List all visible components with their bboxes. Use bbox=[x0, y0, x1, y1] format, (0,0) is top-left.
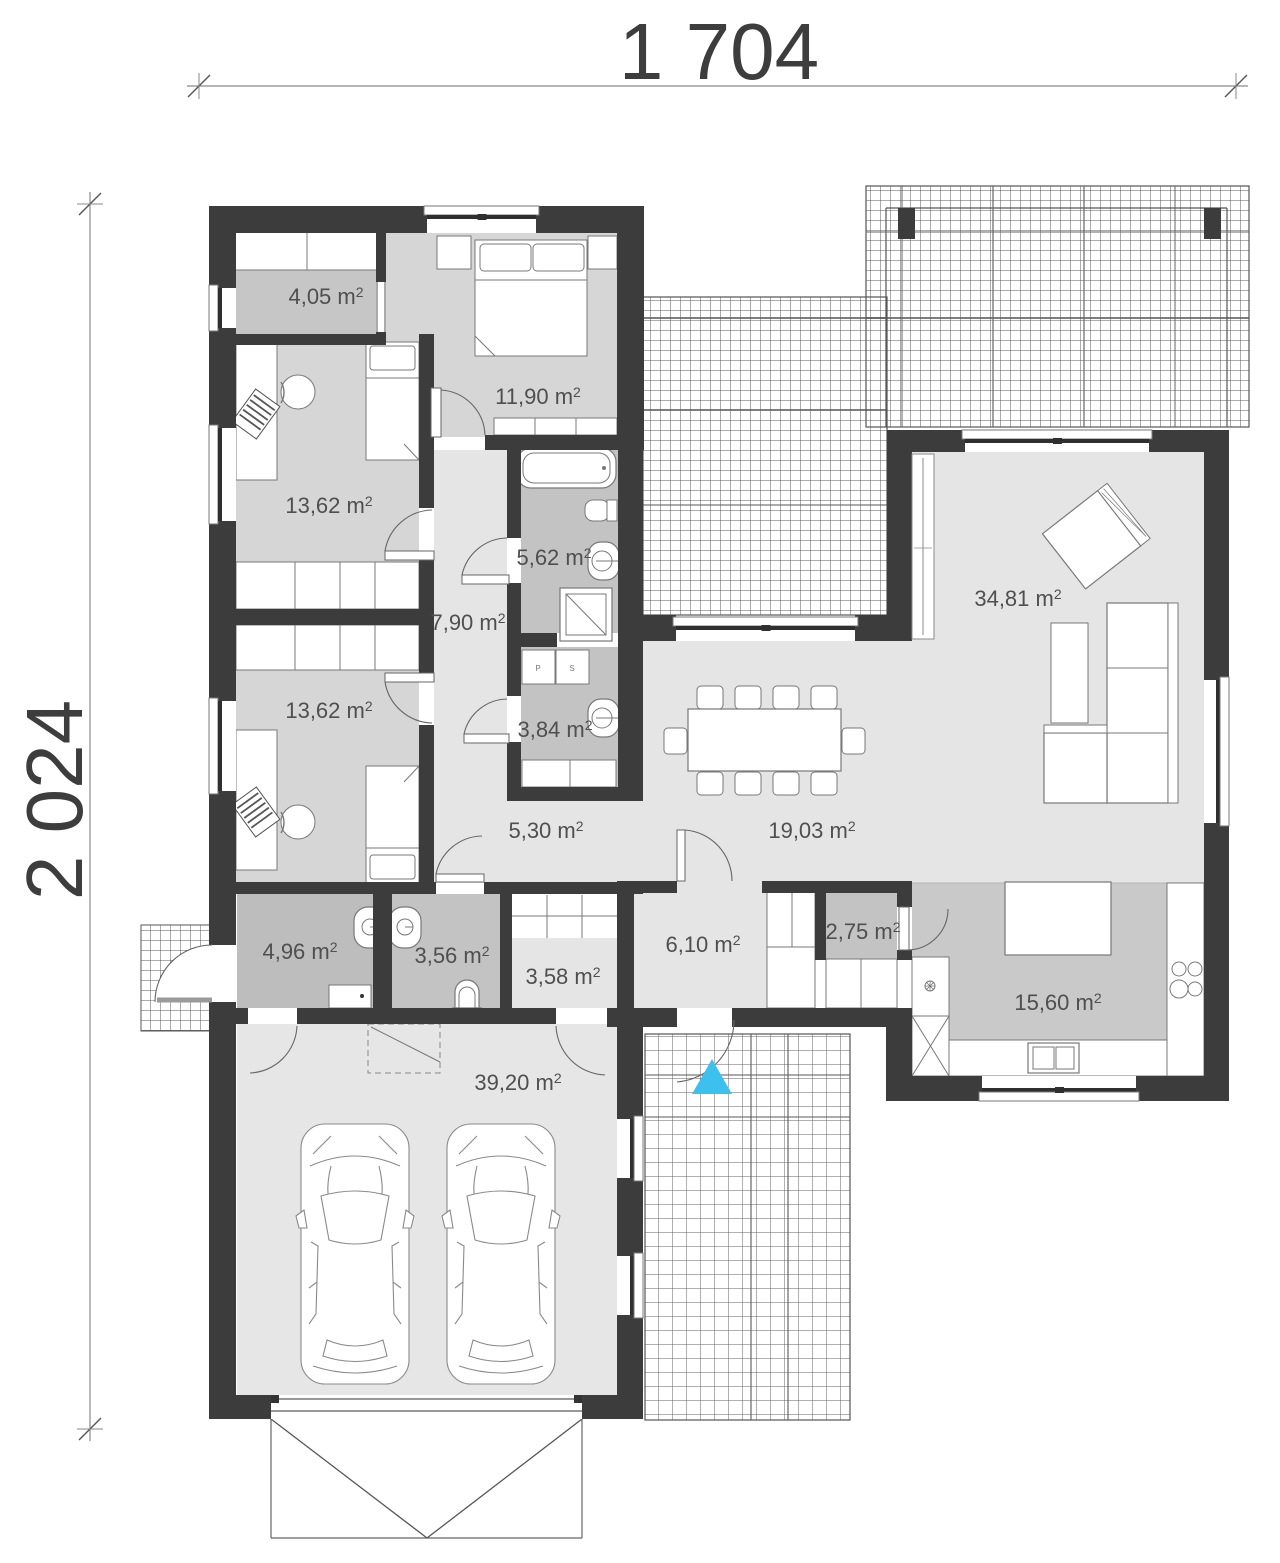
svg-text:4,05 m2: 4,05 m2 bbox=[288, 284, 363, 309]
svg-text:P: P bbox=[535, 664, 540, 673]
svg-text:13,62 m2: 13,62 m2 bbox=[285, 698, 373, 723]
svg-text:39,20 m2: 39,20 m2 bbox=[474, 1070, 562, 1095]
svg-text:5,30 m2: 5,30 m2 bbox=[508, 818, 583, 843]
svg-text:3,58 m2: 3,58 m2 bbox=[525, 964, 600, 989]
svg-text:19,03 m2: 19,03 m2 bbox=[768, 818, 856, 843]
svg-text:7,90 m2: 7,90 m2 bbox=[430, 610, 505, 635]
svg-text:6,10 m2: 6,10 m2 bbox=[665, 932, 740, 957]
svg-text:3,84 m2: 3,84 m2 bbox=[517, 717, 592, 742]
svg-text:2 024: 2 024 bbox=[10, 700, 99, 900]
svg-text:3,56 m2: 3,56 m2 bbox=[414, 943, 489, 968]
svg-text:4,96 m2: 4,96 m2 bbox=[262, 939, 337, 964]
svg-text:13,62 m2: 13,62 m2 bbox=[285, 493, 373, 518]
svg-text:S: S bbox=[569, 664, 574, 673]
svg-text:15,60 m2: 15,60 m2 bbox=[1014, 990, 1102, 1015]
svg-text:1 704: 1 704 bbox=[619, 7, 819, 96]
svg-text:2,75 m2: 2,75 m2 bbox=[825, 919, 900, 944]
svg-text:5,62 m2: 5,62 m2 bbox=[516, 545, 591, 570]
svg-text:11,90 m2: 11,90 m2 bbox=[495, 384, 581, 409]
svg-text:34,81 m2: 34,81 m2 bbox=[974, 586, 1062, 611]
